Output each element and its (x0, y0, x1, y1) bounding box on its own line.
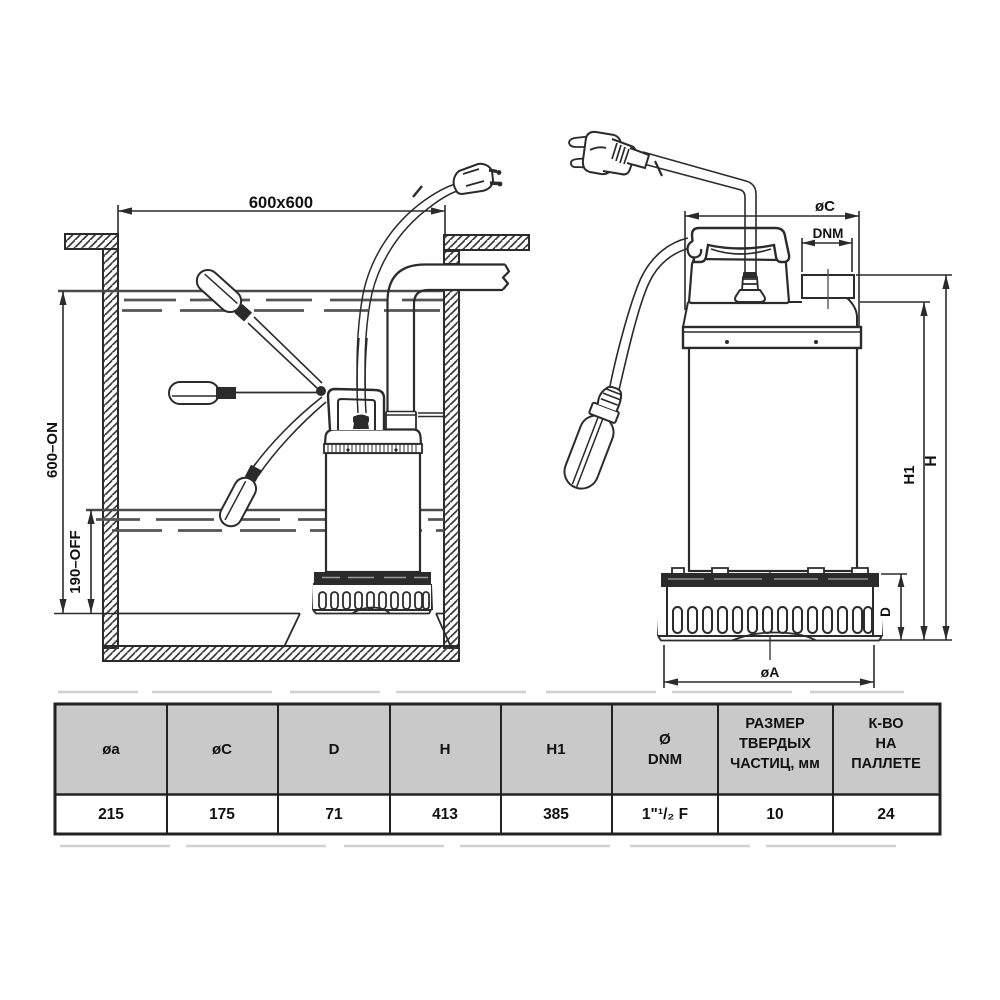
svg-text:ПАЛЛЕТЕ: ПАЛЛЕТЕ (851, 756, 921, 772)
svg-text:215: 215 (98, 806, 124, 823)
svg-text:øC: øC (212, 741, 232, 758)
svg-text:600x600: 600x600 (249, 194, 313, 212)
svg-text:ЧАСТИЦ, мм: ЧАСТИЦ, мм (730, 756, 820, 772)
svg-text:H: H (440, 741, 451, 758)
svg-text:Ø: Ø (659, 731, 671, 748)
svg-text:71: 71 (325, 806, 343, 823)
svg-text:190–OFF: 190–OFF (67, 530, 84, 593)
svg-text:øA: øA (761, 664, 780, 680)
svg-text:ТВЕРДЫХ: ТВЕРДЫХ (739, 736, 811, 752)
svg-text:D: D (329, 741, 340, 758)
svg-text:385: 385 (543, 806, 569, 823)
svg-text:НА: НА (876, 736, 897, 752)
svg-text:24: 24 (877, 806, 895, 823)
svg-text:DNM: DNM (648, 751, 682, 768)
svg-text:D: D (878, 607, 893, 617)
svg-text:10: 10 (766, 806, 783, 823)
svg-text:øa: øa (102, 741, 120, 758)
svg-text:К-ВО: К-ВО (868, 716, 903, 732)
svg-text:H1: H1 (901, 465, 918, 484)
svg-text:H: H (923, 455, 940, 466)
svg-text:1"¹/₂ F: 1"¹/₂ F (642, 806, 688, 823)
svg-text:H1: H1 (546, 741, 565, 758)
svg-text:175: 175 (209, 806, 235, 823)
svg-text:DNM: DNM (813, 226, 844, 241)
svg-text:413: 413 (432, 806, 458, 823)
svg-text:600–ON: 600–ON (44, 422, 61, 478)
svg-text:РАЗМЕР: РАЗМЕР (745, 716, 805, 732)
svg-text:øC: øC (815, 198, 835, 215)
